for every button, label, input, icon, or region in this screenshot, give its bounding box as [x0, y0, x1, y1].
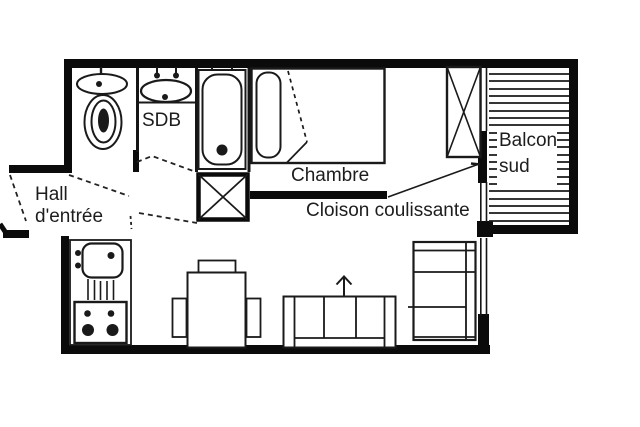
washbasin-taps [154, 67, 179, 79]
kitchen-knob-1 [75, 250, 81, 256]
wall-living-right [478, 314, 489, 349]
window-living [481, 238, 487, 316]
label-hall-line2: d'entrée [35, 207, 103, 228]
wall-balcony-bottom [479, 225, 578, 234]
burner-large-2 [107, 324, 119, 336]
chair-left [173, 299, 187, 338]
hall-boundary-dash [139, 213, 197, 223]
label-hall-line1: Hall [35, 185, 68, 206]
label-bedroom: Chambre [291, 166, 369, 187]
window-bedroom-lower [481, 182, 487, 222]
wall-entry-tick [0, 224, 6, 233]
label-sliding-partition: Cloison coulissante [306, 201, 470, 222]
wall-hall-top [9, 165, 72, 173]
closet-placard [199, 175, 248, 220]
chair-top [199, 261, 236, 273]
wall-bottom [61, 345, 490, 354]
balcony-door-leaf [388, 164, 479, 197]
wall-kitchen-left [61, 236, 69, 348]
bed-outline [252, 69, 385, 164]
wc-door-swing [69, 175, 129, 196]
bathroom [139, 67, 195, 103]
wall-wc-left [64, 59, 72, 173]
label-bathroom: SDB [142, 111, 181, 132]
kitchen-faucet [108, 252, 115, 259]
burner-small-2 [108, 310, 115, 317]
sliding-partition-bar [250, 191, 387, 199]
wardrobe [447, 67, 481, 157]
cabinet [408, 242, 476, 340]
wc-room [77, 67, 127, 149]
toilet-bowl [98, 109, 109, 133]
floor-plan: SDB Hall d'entrée Chambre Cloison coulis… [0, 0, 640, 427]
bathtub [199, 67, 246, 169]
sdb-door-swing [137, 156, 196, 172]
kitchen [70, 240, 131, 345]
wall-top [64, 59, 578, 68]
bathtub-drain [217, 145, 228, 156]
label-balcony-line1: Balcon [499, 131, 557, 152]
chair-right [247, 299, 261, 338]
entry-door-swing [10, 175, 26, 221]
burner-large-1 [82, 324, 94, 336]
sofa-outline [284, 297, 396, 348]
wall-right [569, 59, 578, 234]
dining-table [188, 273, 246, 348]
burner-small-1 [84, 310, 91, 317]
washbasin-drain [162, 94, 168, 100]
label-balcony-line2: sud [499, 157, 530, 178]
wc-sink-drain [96, 81, 102, 87]
kitchen-knob-2 [75, 263, 81, 269]
sofa-bed [284, 277, 396, 348]
hall-boundary-dot [131, 216, 132, 229]
wall-balcony-junction [477, 221, 493, 237]
bed [252, 69, 385, 164]
dining-set [173, 261, 261, 348]
